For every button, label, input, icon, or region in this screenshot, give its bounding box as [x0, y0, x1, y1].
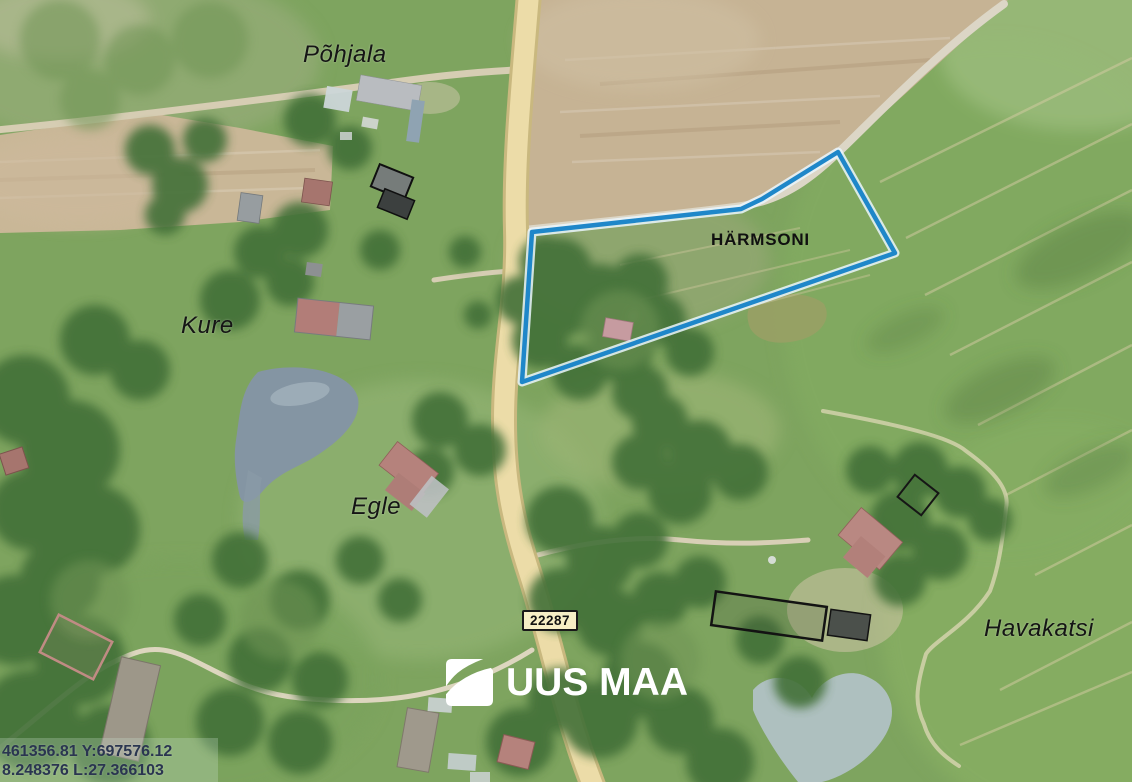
- coordinates-overlay: 461356.81 Y:697576.12 8.248376 L:27.3661…: [2, 742, 172, 780]
- place-label-kure: Kure: [181, 312, 234, 340]
- coordinate-line-1: 461356.81 Y:697576.12: [2, 742, 172, 761]
- road-number-badge: 22287: [522, 610, 578, 631]
- coordinate-line-2: 8.248376 L:27.366103: [2, 761, 172, 780]
- place-label-egle: Egle: [351, 493, 401, 521]
- place-label-havakatsi: Havakatsi: [984, 615, 1094, 643]
- logo-text: UUS MAA: [506, 663, 688, 702]
- property-label-harmsoni: HÄRMSONI: [711, 230, 810, 250]
- place-label-pohjala: Põhjala: [303, 41, 387, 69]
- uus-maa-logo: UUS MAA: [446, 659, 688, 706]
- map-canvas: Põhjala Kure Egle Havakatsi HÄRMSONI 222…: [0, 0, 1132, 782]
- logo-mark-icon: [446, 659, 493, 706]
